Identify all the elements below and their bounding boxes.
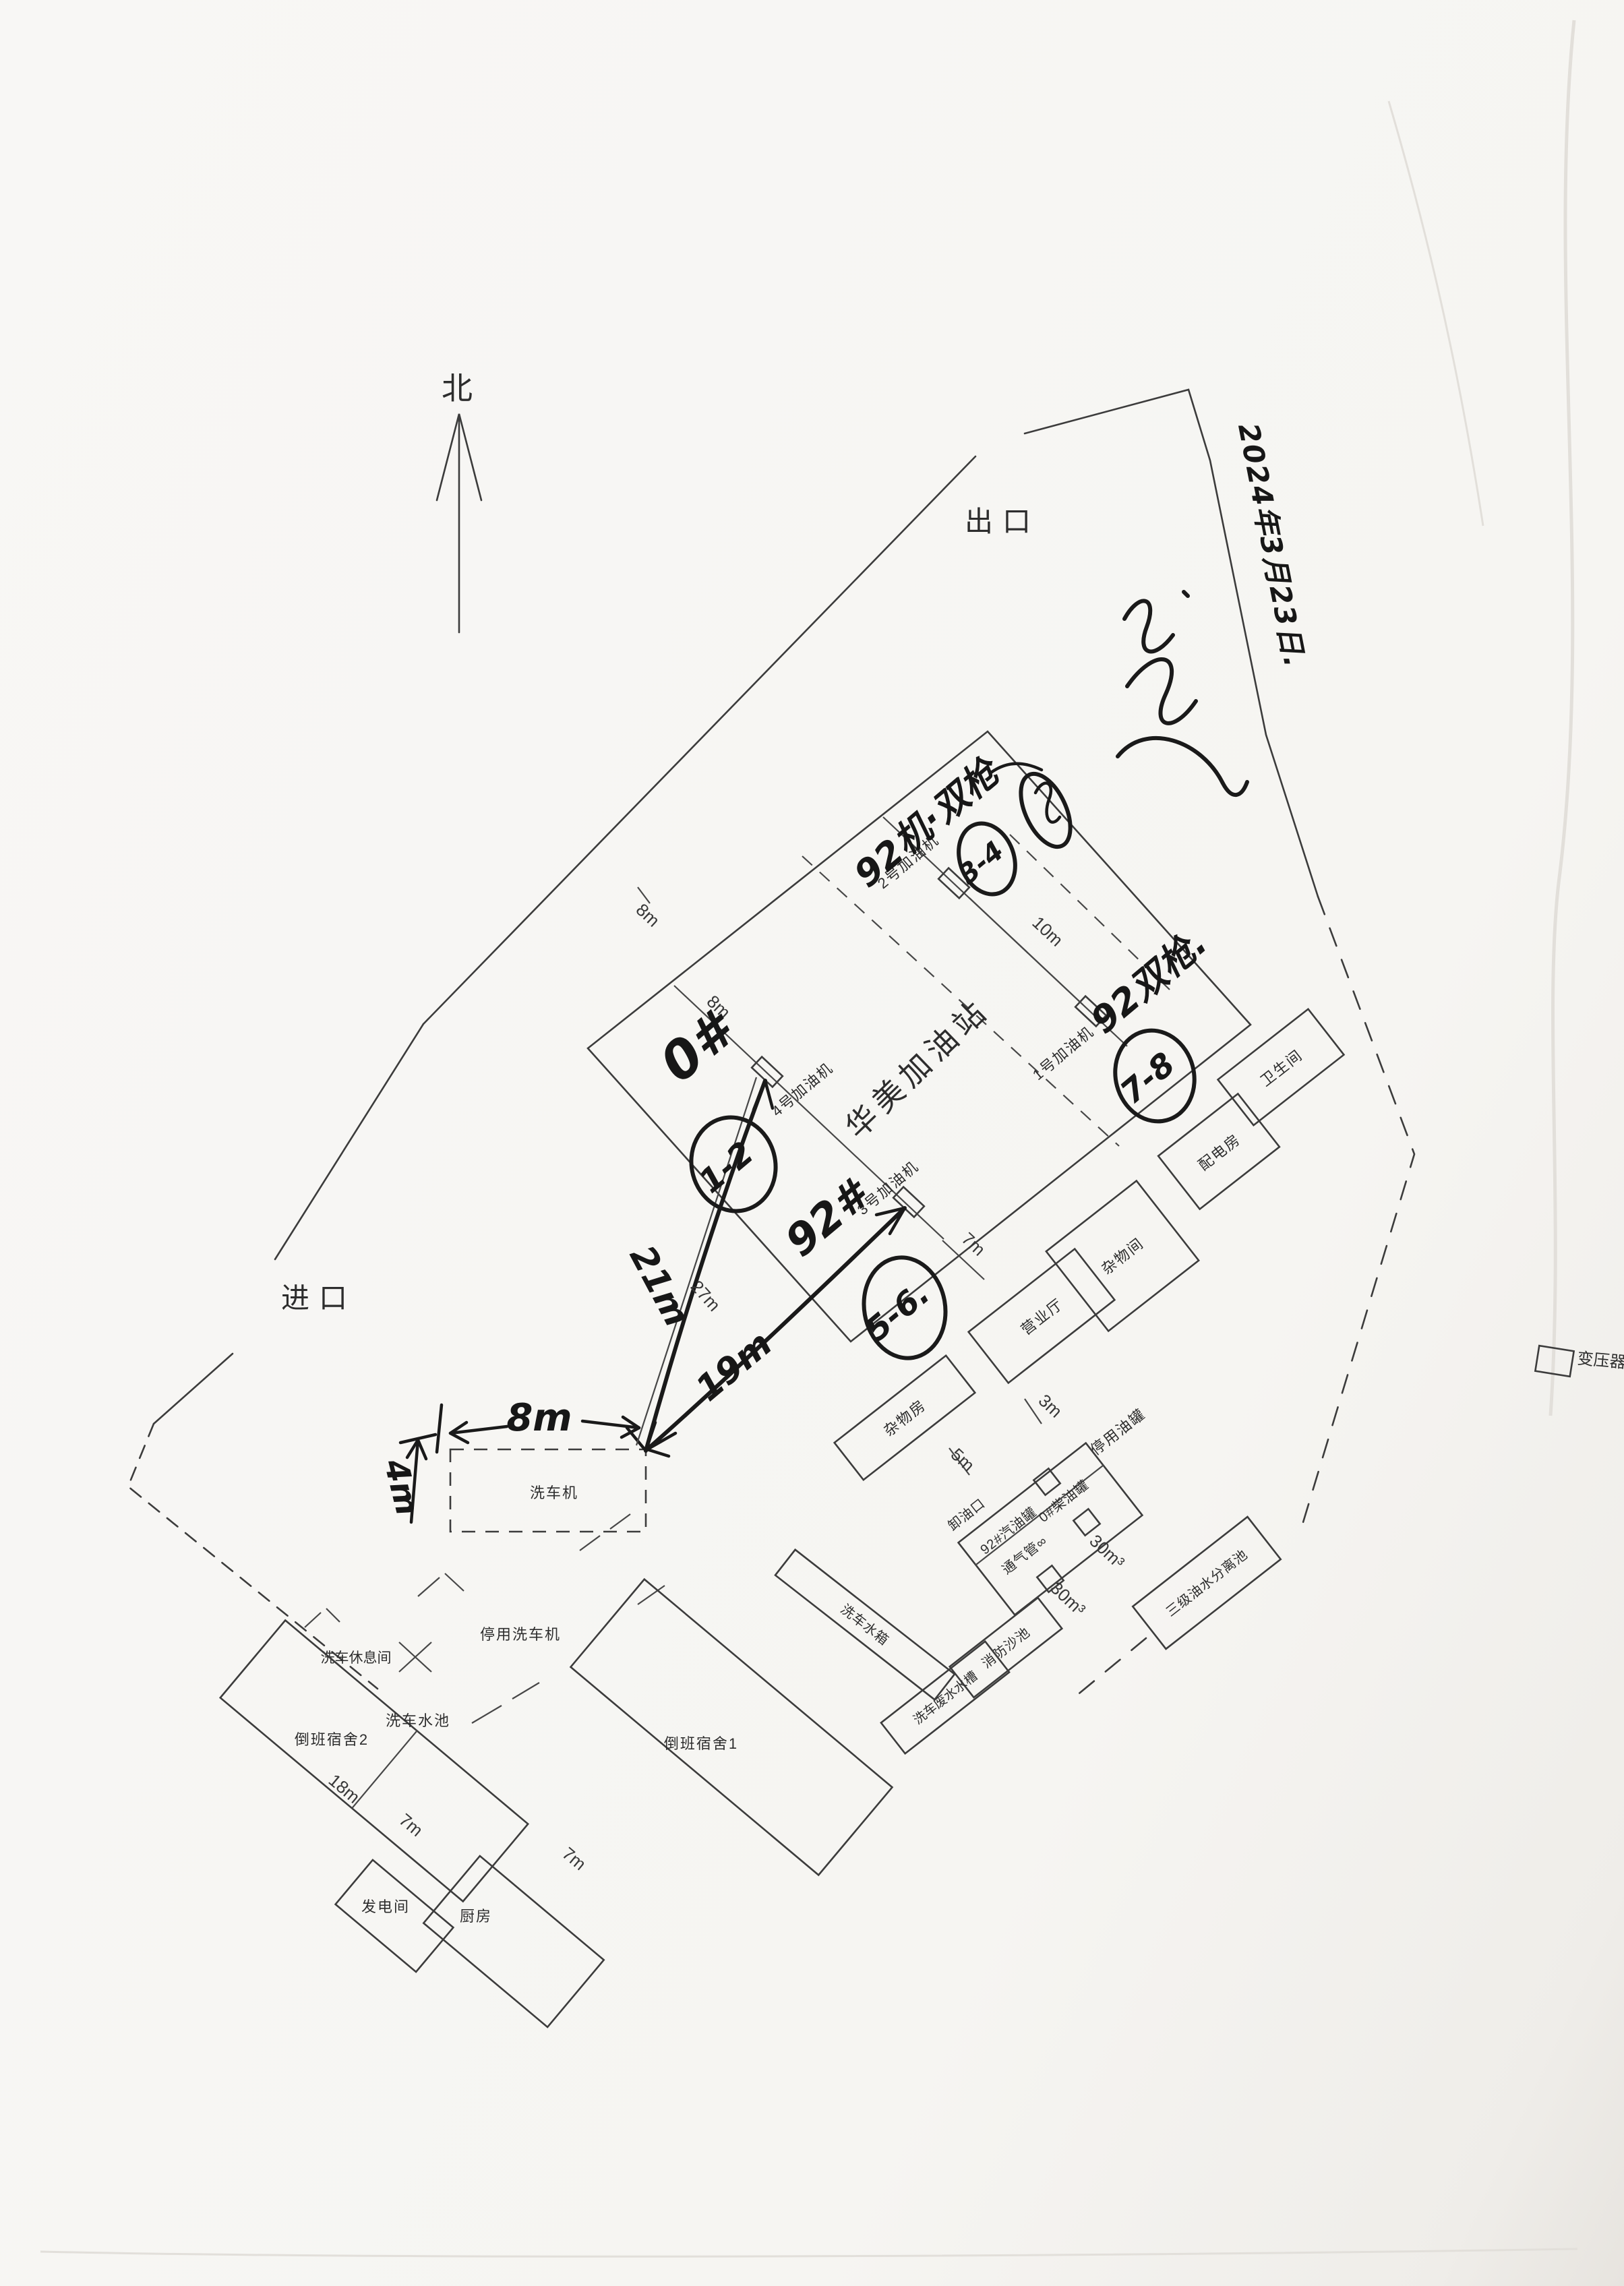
power-room-building: 配电房: [1158, 1093, 1280, 1209]
pump-gap-line: [969, 898, 1083, 1004]
tank-gap-3m: 3m: [1035, 1390, 1066, 1422]
station-name: 华美加油站: [839, 991, 996, 1145]
kitchen-building: [423, 1856, 603, 2027]
x-mark: [399, 1642, 431, 1672]
carwash-water-tank-label: 洗车水箱: [838, 1601, 892, 1648]
signature-scribble: [1118, 592, 1247, 795]
carwash-water-tank-building: 洗车水箱: [775, 1550, 955, 1700]
generator-room-label: 发电间: [361, 1898, 410, 1915]
restroom-label: 卫生间: [1257, 1046, 1306, 1089]
business-hall-building: 营业厅: [969, 1249, 1115, 1383]
lane-dash-center: [802, 856, 1119, 1146]
diesel-tank-label: 0#柴油罐: [1036, 1477, 1092, 1526]
tank-volume-a: 30m³: [1046, 1577, 1089, 1620]
kitchen-7m: 7m: [558, 1843, 590, 1874]
separator-pool-label: 三级油水分离池: [1163, 1546, 1251, 1620]
nozzle-circle-p3: 5-6.: [859, 1275, 937, 1349]
pump3-annotation: 92# 5-6.: [777, 1168, 954, 1364]
hall-gap-7m: 7m: [958, 1228, 990, 1260]
pump-gap-10m: 10m: [1028, 912, 1066, 950]
pump3-note: 92#: [777, 1168, 880, 1267]
fire-sand-pool-label: 消防沙池: [979, 1624, 1033, 1671]
canopy-8m-a: 8m: [632, 899, 664, 931]
washer-21m: 21m: [622, 1239, 697, 1333]
carwash-pool-label: 洗车水池: [386, 1712, 450, 1729]
pump4-note: 0#: [649, 998, 748, 1094]
tank-farm: 卸油口 92#汽油罐 0#柴油罐 通气管∞ 30m³ 30m³: [945, 1443, 1142, 1620]
unload-gap-5m: 5m: [947, 1444, 979, 1476]
business-hall-label: 营业厅: [1018, 1295, 1066, 1338]
dorm1-building: [571, 1580, 893, 1875]
tank-square-2: [1073, 1509, 1100, 1535]
kitchen-label: 厨房: [460, 1908, 492, 1925]
pump2-annotation: 92机·双枪 3-4: [846, 748, 1081, 902]
transformer: 变压器: [1535, 1346, 1624, 1377]
separator-pool: 三级油水分离池: [1133, 1517, 1280, 1649]
scribble-annotation: [991, 764, 1081, 855]
tank-volume-b: 30m³: [1085, 1530, 1129, 1573]
disused-tank-label: 停用油罐: [1087, 1406, 1149, 1459]
washer-19m: 19m: [688, 1323, 780, 1409]
scan-crease-marks: [40, 20, 1577, 2256]
pump1-note: 92双枪.: [1083, 921, 1215, 1042]
transformer-label: 变压器: [1577, 1350, 1624, 1372]
pump1-annotation: 92双枪. 7-8: [1083, 921, 1215, 1130]
pump4-label: 4号加油机: [769, 1059, 837, 1120]
entrance-label: 进口: [281, 1282, 357, 1314]
washer-label: 洗车机: [530, 1484, 578, 1501]
washer-area: 洗车机 8m 4m: [376, 1396, 646, 1532]
disused-washer-label: 停用洗车机: [480, 1626, 561, 1643]
washwater-tank-label: 洗车废水水槽: [911, 1668, 980, 1728]
unload-port-label: 卸油口: [945, 1495, 988, 1534]
site-plan-drawing: 北 出口 进口 华美加油站 2号加油机 1号加油机 10m: [0, 0, 1624, 2286]
restroom-building: 卫生间: [1218, 1009, 1344, 1125]
washer-width-8m: 8m: [506, 1396, 572, 1440]
north-arrow: 北: [437, 371, 481, 632]
washer-height-4m: 4m: [376, 1455, 427, 1519]
sundry-room-label: 杂物间: [1098, 1234, 1147, 1277]
washer-height-dim: 4m: [376, 1435, 435, 1522]
disused-washer-area: 停用洗车机: [472, 1514, 665, 1723]
date-annotation: 2024年3月23日.: [1232, 421, 1311, 671]
dorm2-gap-7m: 7m: [395, 1809, 427, 1840]
generator-room-building: [336, 1860, 454, 1972]
site-boundary: [128, 390, 1414, 1702]
pump1-label: 1号加油机: [1029, 1023, 1097, 1083]
sundry-room-building: 杂物间: [1046, 1181, 1199, 1331]
north-label: 北: [442, 371, 473, 406]
scanned-site-plan-page: 北 出口 进口 华美加油站 2号加油机 1号加油机 10m: [0, 0, 1624, 2286]
dorm2-label: 倒班宿舍2: [295, 1731, 369, 1748]
dorm1-label: 倒班宿舍1: [664, 1735, 738, 1752]
power-room-label: 配电房: [1195, 1131, 1244, 1174]
pump4-annotation: 0# 1-2: [649, 998, 786, 1220]
exit-label: 出口: [965, 506, 1040, 537]
